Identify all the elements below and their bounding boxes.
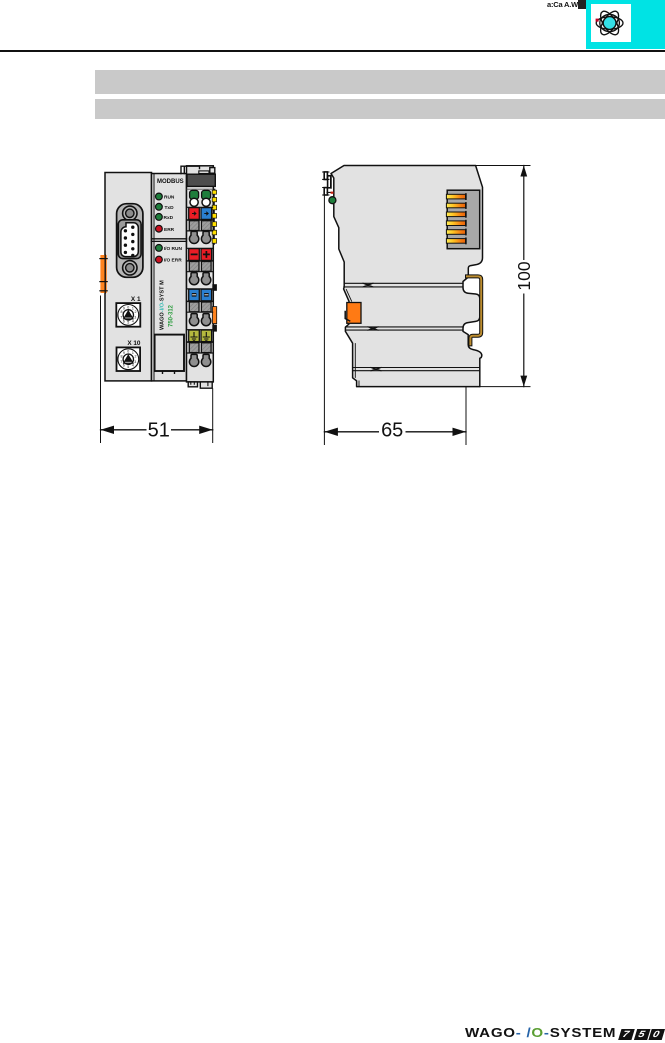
svg-text:2: 2	[135, 310, 137, 314]
svg-text:8: 8	[121, 310, 123, 314]
svg-text:RxD: RxD	[164, 215, 174, 221]
svg-text:100: 100	[514, 261, 534, 290]
svg-text:65: 65	[381, 420, 403, 442]
svg-text:5: 5	[127, 365, 129, 369]
svg-text:7: 7	[120, 360, 122, 364]
svg-text:2: 2	[135, 355, 137, 359]
svg-text:3: 3	[134, 316, 136, 320]
svg-text:4: 4	[132, 364, 134, 368]
svg-text:ERR: ERR	[164, 227, 175, 233]
svg-text:9: 9	[123, 307, 125, 311]
svg-text:8: 8	[121, 355, 123, 359]
svg-text:6: 6	[123, 364, 125, 368]
svg-text:4: 4	[132, 319, 134, 323]
svg-text:5: 5	[127, 321, 129, 325]
svg-text:X 10: X 10	[127, 340, 141, 347]
svg-text:6: 6	[123, 319, 125, 323]
svg-text:750-312: 750-312	[169, 304, 175, 327]
svg-text:I/O RUN: I/O RUN	[164, 246, 183, 252]
svg-text:0: 0	[127, 305, 129, 309]
svg-text:I/O ERR: I/O ERR	[164, 258, 182, 264]
svg-text:RUN: RUN	[164, 195, 175, 201]
svg-text:WAGO-I/O-SYST M: WAGO-I/O-SYST M	[160, 280, 166, 330]
svg-text:51: 51	[148, 419, 170, 441]
svg-text:0: 0	[127, 350, 129, 354]
svg-text:MODBUS: MODBUS	[157, 179, 184, 185]
svg-text:3: 3	[134, 360, 136, 364]
svg-text:9: 9	[123, 351, 125, 355]
svg-text:X 1: X 1	[131, 296, 141, 303]
svg-text:7: 7	[120, 316, 122, 320]
svg-text:TxD: TxD	[165, 205, 175, 211]
